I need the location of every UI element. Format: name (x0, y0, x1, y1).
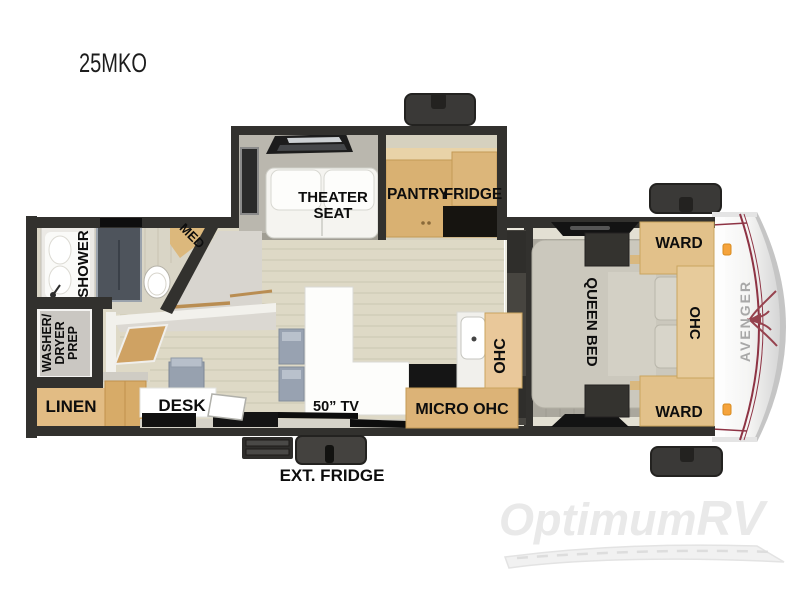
svg-text:DESK: DESK (158, 396, 206, 415)
svg-text:FRIDGE: FRIDGE (444, 186, 503, 203)
svg-text:PREP: PREP (66, 326, 80, 360)
svg-text:AVENGER: AVENGER (737, 280, 753, 362)
svg-text:WARD: WARD (655, 404, 702, 421)
svg-text:OHC: OHC (686, 306, 703, 340)
svg-text:THEATER: THEATER (298, 189, 368, 206)
svg-text:WASHER/: WASHER/ (40, 313, 54, 372)
svg-text:25MKO: 25MKO (79, 48, 147, 78)
svg-text:MICRO OHC: MICRO OHC (415, 401, 509, 418)
svg-text:LINEN: LINEN (46, 397, 97, 416)
svg-text:50” TV: 50” TV (313, 399, 359, 415)
svg-text:PANTRY: PANTRY (387, 186, 450, 203)
svg-text:EXT. FRIDGE: EXT. FRIDGE (280, 466, 385, 485)
svg-text:OHC: OHC (492, 338, 509, 374)
svg-text:OptimumRV: OptimumRV (499, 492, 769, 546)
svg-text:SEAT: SEAT (314, 205, 353, 222)
svg-text:SHOWER: SHOWER (75, 230, 92, 298)
svg-text:WARD: WARD (655, 235, 702, 252)
svg-text:DRYER: DRYER (53, 321, 67, 364)
svg-text:QUEEN BED: QUEEN BED (583, 277, 600, 366)
